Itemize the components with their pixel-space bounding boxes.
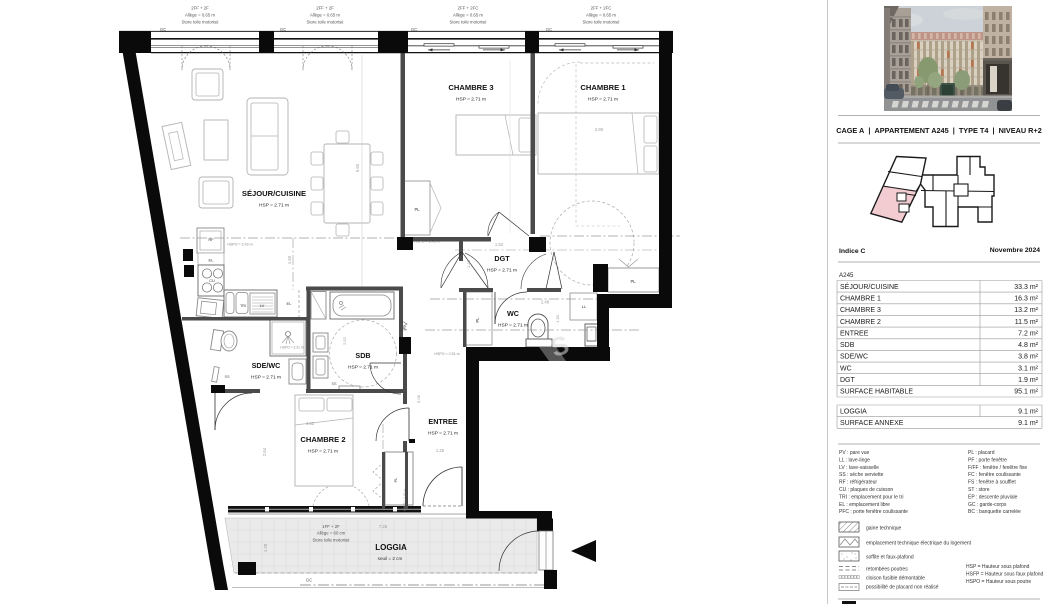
svg-text:HSPO = 2.51 m: HSPO = 2.51 m — [434, 352, 459, 356]
svg-text:Allège = 0.65 m: Allège = 0.65 m — [586, 13, 616, 18]
svg-text:7.2 m²: 7.2 m² — [1018, 330, 1039, 337]
svg-text:7.25: 7.25 — [379, 524, 388, 529]
svg-text:HSFP = Hauteur sous faux plafo: HSFP = Hauteur sous faux plafond — [966, 572, 1044, 578]
svg-text:16.3 m²: 16.3 m² — [1014, 295, 1038, 302]
svg-text:RF : réfrigérateur: RF : réfrigérateur — [839, 480, 877, 486]
svg-text:1.20: 1.20 — [466, 259, 471, 268]
svg-text:SDB: SDB — [355, 351, 370, 360]
svg-text:HSP = 2.71 m: HSP = 2.71 m — [308, 449, 338, 455]
svg-text:Store toile motorisé: Store toile motorisé — [306, 20, 344, 25]
svg-text:HSP = 2.71 m: HSP = 2.71 m — [251, 375, 281, 381]
svg-text:ENTREE: ENTREE — [840, 330, 869, 337]
svg-text:13.2 m²: 13.2 m² — [1014, 307, 1038, 314]
svg-text:seuil = 2 cm: seuil = 2 cm — [378, 556, 403, 561]
svg-text:LV: LV — [260, 303, 265, 308]
svg-text:HSP = 2.71 m: HSP = 2.71 m — [348, 365, 378, 371]
svg-text:GC : garde-corps: GC : garde-corps — [968, 502, 1007, 508]
svg-text:1.50: 1.50 — [287, 255, 292, 264]
svg-text:EP : descente pluviale: EP : descente pluviale — [968, 494, 1018, 500]
svg-text:2.90: 2.90 — [595, 127, 604, 132]
svg-text:WC: WC — [507, 309, 519, 318]
svg-text:EL: EL — [287, 301, 293, 306]
svg-text:SURFACE ANNEXE: SURFACE ANNEXE — [840, 420, 904, 427]
svg-text:SDE/WC: SDE/WC — [252, 361, 281, 370]
svg-text:PFC : porte fenêtre coulissant: PFC : porte fenêtre coulissante — [839, 509, 908, 515]
svg-text:CHAMBRE 2: CHAMBRE 2 — [840, 319, 881, 326]
svg-text:3.8 m²: 3.8 m² — [1018, 354, 1039, 361]
svg-text:3.1 m²: 3.1 m² — [1018, 365, 1039, 372]
svg-text:Allège = 0.65 m: Allège = 0.65 m — [453, 13, 483, 18]
svg-text:1.28: 1.28 — [263, 543, 268, 552]
svg-text:CU : plaques de cuisson: CU : plaques de cuisson — [839, 487, 893, 493]
svg-text:A245: A245 — [839, 272, 854, 279]
svg-text:possibilité de placard non réa: possibilité de placard non réalisé — [866, 585, 939, 591]
svg-text:CHAMBRE 1: CHAMBRE 1 — [580, 83, 626, 92]
svg-text:PV: PV — [403, 325, 407, 331]
svg-text:GC: GC — [306, 578, 312, 583]
svg-text:Store toile motorisé: Store toile motorisé — [449, 20, 487, 25]
svg-text:HSP = Hauteur sous plafond: HSP = Hauteur sous plafond — [966, 564, 1030, 570]
svg-text:SURFACE HABITABLE: SURFACE HABITABLE — [840, 389, 913, 396]
svg-text:LOGGIA: LOGGIA — [375, 543, 407, 552]
svg-text:Store toile motorisé: Store toile motorisé — [582, 20, 620, 25]
svg-text:LL : lave-linge: LL : lave-linge — [839, 457, 870, 463]
svg-text:Allège = 0.65 m: Allège = 0.65 m — [185, 13, 215, 18]
svg-text:Allège = 60 cm: Allège = 60 cm — [317, 531, 346, 536]
svg-text:Store toile motorisé: Store toile motorisé — [312, 538, 350, 543]
svg-text:ST : store: ST : store — [968, 487, 990, 493]
svg-text:1.25: 1.25 — [436, 448, 445, 453]
svg-text:CU: CU — [209, 279, 215, 283]
svg-text:2.52: 2.52 — [342, 336, 347, 345]
svg-text:SS: SS — [224, 375, 230, 379]
svg-text:2.64: 2.64 — [262, 447, 267, 456]
svg-text:PL: PL — [394, 478, 398, 483]
svg-text:SÉJOUR/CUISINE: SÉJOUR/CUISINE — [840, 282, 899, 291]
svg-text:2.48: 2.48 — [541, 300, 550, 305]
svg-text:EL : emplacement libre: EL : emplacement libre — [839, 502, 890, 508]
svg-text:9.1 m²: 9.1 m² — [1018, 420, 1039, 427]
svg-text:4.8 m²: 4.8 m² — [1018, 342, 1039, 349]
svg-text:PV : pare vue: PV : pare vue — [839, 450, 870, 456]
svg-text:SDE/WC: SDE/WC — [840, 354, 868, 361]
svg-text:Store toile motorisé: Store toile motorisé — [181, 20, 219, 25]
svg-text:PL : placard: PL : placard — [968, 450, 995, 456]
svg-text:Novembre 2024: Novembre 2024 — [990, 247, 1040, 254]
svg-text:emplacement technique électriq: emplacement technique électrique du loge… — [866, 541, 972, 547]
svg-text:CHAMBRE 3: CHAMBRE 3 — [840, 307, 881, 314]
svg-text:SS: SS — [331, 382, 337, 386]
svg-text:HSP = 2.71 m: HSP = 2.71 m — [259, 203, 289, 209]
svg-text:1.52: 1.52 — [495, 242, 504, 247]
svg-text:4.63: 4.63 — [306, 421, 315, 426]
svg-text:Indice C: Indice C — [839, 248, 866, 255]
svg-text:HSP = 2.71 m: HSP = 2.71 m — [588, 97, 618, 103]
svg-text:PL: PL — [475, 317, 480, 323]
svg-text:2FF + 2FC: 2FF + 2FC — [591, 6, 612, 11]
svg-text:HSPO = Hauteur sous poutre: HSPO = Hauteur sous poutre — [966, 579, 1031, 585]
svg-text:PL: PL — [630, 279, 636, 284]
svg-text:SÉJOUR/CUISINE: SÉJOUR/CUISINE — [242, 189, 306, 198]
svg-text:HSPO = 2.43 m: HSPO = 2.43 m — [227, 243, 252, 247]
svg-text:HSP = 2.71 m: HSP = 2.71 m — [498, 323, 528, 329]
svg-text:HSPO = 2.31 m: HSPO = 2.31 m — [280, 346, 303, 350]
svg-text:FS : fenêtre à soufflet: FS : fenêtre à soufflet — [968, 480, 1016, 486]
svg-text:SDB: SDB — [840, 342, 855, 349]
svg-text:ENTREE: ENTREE — [428, 417, 457, 426]
svg-text:DGT: DGT — [840, 377, 856, 384]
svg-text:WC: WC — [840, 365, 852, 372]
svg-text:2FF + 2FC: 2FF + 2FC — [458, 6, 479, 11]
svg-text:cloison fusible démontable: cloison fusible démontable — [866, 576, 925, 582]
svg-text:11.5 m²: 11.5 m² — [1015, 319, 1039, 326]
svg-text:CAGE A | APPARTEMENT A245 |: CAGE A | APPARTEMENT A245 | TYPE T4 | NI… — [836, 126, 1042, 135]
svg-text:DGT: DGT — [494, 254, 510, 263]
svg-text:CHAMBRE 1: CHAMBRE 1 — [840, 295, 881, 302]
svg-text:33.3 m²: 33.3 m² — [1014, 284, 1038, 291]
svg-text:LV : lave-vaisselle: LV : lave-vaisselle — [839, 465, 879, 471]
svg-text:BC : banquette carrelée: BC : banquette carrelée — [968, 509, 1021, 515]
svg-text:Allège = 0.65 m: Allège = 0.65 m — [310, 13, 340, 18]
svg-text:EL: EL — [209, 258, 215, 263]
svg-text:HSP = 2.71 m: HSP = 2.71 m — [456, 97, 486, 103]
svg-text:PF : porte fenêtre: PF : porte fenêtre — [968, 457, 1007, 463]
svg-text:CHAMBRE 3: CHAMBRE 3 — [448, 83, 493, 92]
svg-text:retombées poutres: retombées poutres — [866, 567, 908, 573]
svg-text:1FF + 2F: 1FF + 2F — [322, 524, 340, 529]
svg-text:HSP = 2.71 m: HSP = 2.71 m — [428, 431, 458, 437]
svg-text:5.60: 5.60 — [355, 163, 360, 172]
svg-text:LOGGIA: LOGGIA — [840, 408, 867, 415]
svg-text:2FF + 2F: 2FF + 2F — [316, 6, 334, 11]
svg-text:PL: PL — [414, 207, 420, 212]
svg-text:LL: LL — [582, 304, 587, 309]
svg-text:5.06: 5.06 — [416, 394, 421, 403]
svg-text:soffite et faux-plafond: soffite et faux-plafond — [866, 555, 914, 561]
svg-text:9.1 m²: 9.1 m² — [1018, 408, 1039, 415]
svg-text:CHAMBRE 2: CHAMBRE 2 — [300, 435, 345, 444]
svg-text:2FF + 2F: 2FF + 2F — [191, 6, 209, 11]
svg-text:FC : fenêtre coulissante: FC : fenêtre coulissante — [968, 472, 1021, 478]
svg-text:1.30: 1.30 — [555, 314, 560, 323]
svg-text:TRI : emplacement pour le tri: TRI : emplacement pour le tri — [839, 494, 903, 500]
svg-text:HSP = 2.71 m: HSP = 2.71 m — [487, 268, 517, 274]
svg-text:SS : sèche serviette: SS : sèche serviette — [839, 472, 884, 478]
svg-text:F/FF : fenêtre / fenêtre fixe: F/FF : fenêtre / fenêtre fixe — [968, 465, 1027, 471]
svg-text:gaine technique: gaine technique — [866, 526, 902, 532]
svg-text:TRI: TRI — [240, 304, 246, 308]
svg-text:1.9 m²: 1.9 m² — [1018, 377, 1039, 384]
svg-text:95.1 m²: 95.1 m² — [1014, 389, 1038, 396]
